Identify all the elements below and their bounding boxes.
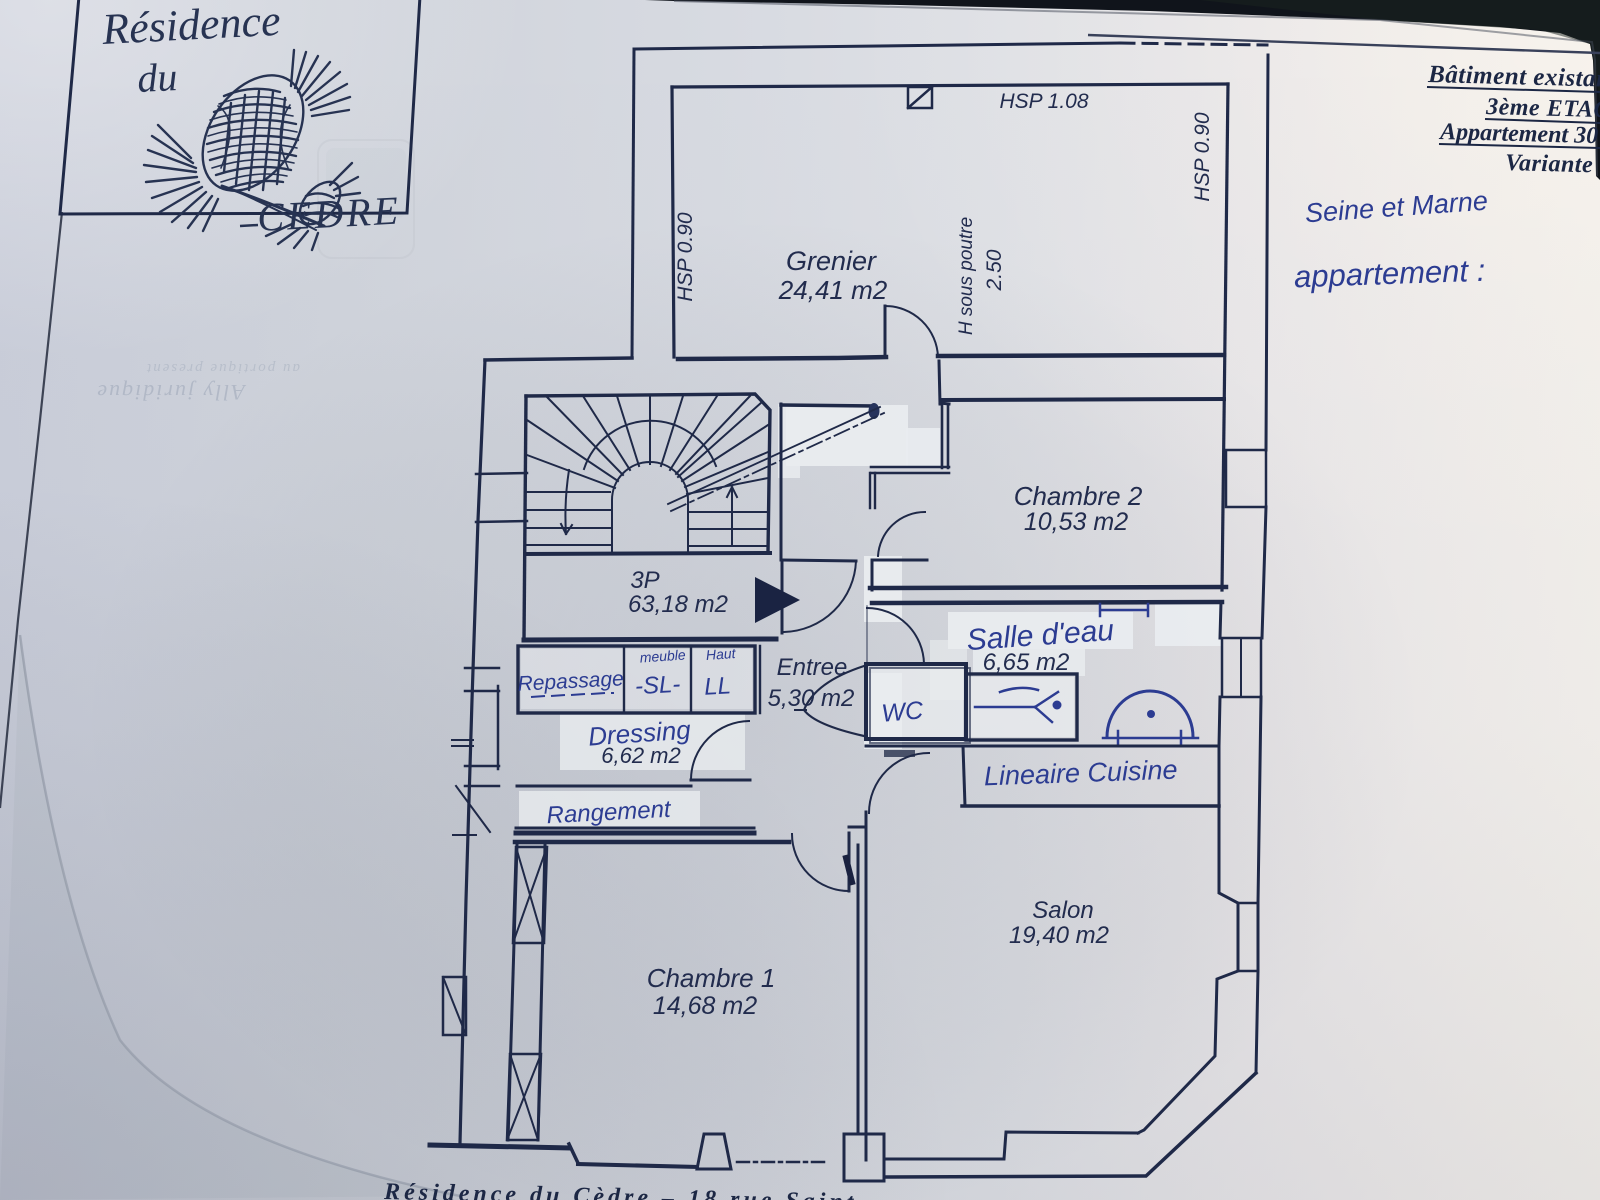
svg-text:HSP 1.08: HSP 1.08 [999, 90, 1088, 113]
svg-text:19,40 m2: 19,40 m2 [1009, 922, 1109, 949]
svg-text:HSP 0.90: HSP 0.90 [674, 212, 697, 301]
svg-text:au portique present: au portique present [145, 360, 300, 376]
svg-text:Haut: Haut [705, 645, 737, 663]
svg-text:2.50: 2.50 [983, 249, 1006, 291]
svg-text:Chambre 2: Chambre 2 [1014, 481, 1143, 511]
svg-text:Grenier: Grenier [786, 246, 877, 276]
svg-text:H sous poutre: H sous poutre [956, 217, 977, 335]
svg-text:Entree: Entree [777, 654, 848, 681]
svg-text:Salon: Salon [1032, 897, 1093, 924]
svg-text:10,53 m2: 10,53 m2 [1024, 508, 1128, 536]
svg-text:LL: LL [704, 672, 732, 700]
svg-text:Chambre 1: Chambre 1 [647, 963, 776, 993]
svg-text:3P: 3P [630, 567, 659, 594]
svg-text:HSP 0.90: HSP 0.90 [1191, 112, 1214, 201]
svg-text:appartement :: appartement : [1293, 253, 1485, 295]
svg-text:du: du [136, 54, 178, 101]
svg-text:24,41 m2: 24,41 m2 [778, 275, 888, 305]
svg-text:Résidence: Résidence [100, 0, 282, 54]
svg-text:14,68 m2: 14,68 m2 [653, 992, 757, 1020]
svg-text:5,30 m2: 5,30 m2 [768, 685, 855, 712]
svg-text:-SL-: -SL- [634, 671, 681, 700]
svg-text:meuble: meuble [639, 646, 686, 665]
svg-text:Variante 1: Variante 1 [1505, 150, 1600, 179]
svg-text:63,18 m2: 63,18 m2 [628, 591, 728, 618]
svg-text:WC: WC [880, 696, 925, 728]
svg-text:Ally juridique: Ally juridique [95, 380, 247, 405]
